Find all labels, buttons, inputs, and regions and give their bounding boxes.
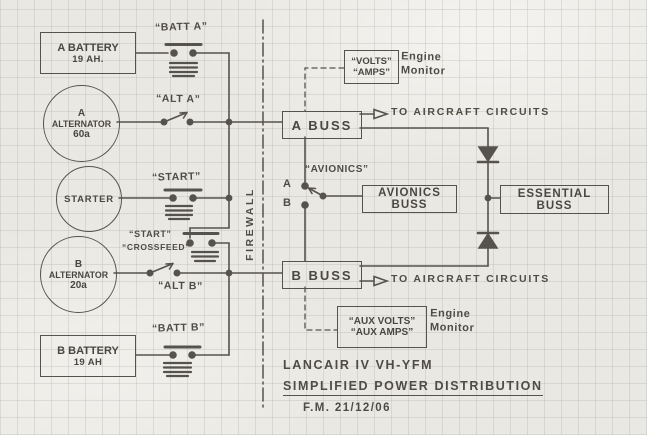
title-aircraft: LANCAIR IV VH-YFM <box>283 358 433 372</box>
battery-a-rating: 19 AH. <box>72 54 104 65</box>
avionics-switch-label: “AVIONICS” <box>305 164 369 175</box>
alternator-a-name: ALTERNATOR <box>52 119 111 129</box>
batt-a-contactor-icon <box>166 45 201 77</box>
batt-b-switch-label: “BATT B” <box>152 321 205 334</box>
alternator-b-rating: 20a <box>70 280 87 291</box>
aux-volts-amps-monitor-box: “AUX VOLTS” “AUX AMPS” <box>337 306 427 348</box>
to-aircraft-circuits-top-label: TO AIRCRAFT CIRCUITS <box>391 106 550 118</box>
alt-b-switch-icon <box>114 264 282 276</box>
starter-name: STARTER <box>64 194 114 205</box>
avionics-buss-box: AVIONICS BUSS <box>362 185 457 213</box>
battery-a-name: A BATTERY <box>57 42 118 54</box>
alt-a-switch-icon <box>117 113 282 125</box>
amps-label: “AMPS” <box>353 67 390 78</box>
crossfeed-label-line1: “START” <box>129 229 172 239</box>
engine-monitor-bottom-label: Engine Monitor <box>430 307 493 336</box>
volts-label: “VOLTS” <box>351 56 391 67</box>
start-switch-label: “START” <box>152 170 201 183</box>
avionics-position-b-label: B <box>283 197 292 209</box>
avionics-switch-icon <box>302 137 362 261</box>
alt-b-switch-label: “ALT B” <box>158 280 203 293</box>
essential-buss-label: ESSENTIAL BUSS <box>501 188 608 212</box>
a-buss-box: A BUSS <box>282 111 362 139</box>
crossfeed-label-line2: “CROSSFEED” <box>122 242 190 252</box>
schematic-page: A BATTERY 19 AH. A ALTERNATOR 60a STARTE… <box>0 0 647 435</box>
alternator-a-circle: A ALTERNATOR 60a <box>43 85 120 162</box>
b-buss-label: B BUSS <box>291 268 352 283</box>
start-contactor-icon <box>119 190 229 219</box>
batt-a-switch-label: “BATT A” <box>155 20 208 33</box>
alternator-b-circle: B ALTERNATOR 20a <box>40 236 117 313</box>
alternator-b-name: ALTERNATOR <box>49 270 108 280</box>
avionics-buss-label: AVIONICS BUSS <box>363 187 456 211</box>
aux-amps-label: “AUX AMPS” <box>351 327 413 338</box>
firewall-label: FIREWALL <box>244 174 256 274</box>
a-buss-label: A BUSS <box>292 118 353 133</box>
alternator-a-rating: 60a <box>73 129 90 140</box>
volts-amps-monitor-box: “VOLTS” “AMPS” <box>344 50 399 84</box>
title-initials-date: F.M. 21/12/06 <box>303 402 391 414</box>
arrow-right-icon <box>374 110 387 119</box>
battery-b-name: B BATTERY <box>57 345 119 357</box>
arrow-right-icon <box>374 277 387 286</box>
essential-buss-box: ESSENTIAL BUSS <box>500 185 609 214</box>
aux-volts-label: “AUX VOLTS” <box>349 316 415 327</box>
b-buss-box: B BUSS <box>282 261 362 289</box>
battery-b-box: B BATTERY 19 AH <box>40 335 136 377</box>
alternator-a-letter: A <box>78 108 85 119</box>
diode-bottom-icon <box>478 233 498 248</box>
battery-a-box: A BATTERY 19 AH. <box>40 32 136 74</box>
diode-top-icon <box>478 147 498 162</box>
alt-a-switch-label: “ALT A” <box>156 93 201 106</box>
alternator-b-letter: B <box>75 259 82 270</box>
to-aircraft-circuits-bottom-label: TO AIRCRAFT CIRCUITS <box>391 273 550 285</box>
engine-monitor-top-label: Engine Monitor <box>401 50 460 79</box>
starter-circle: STARTER <box>56 166 122 232</box>
batt-b-contactor-icon <box>164 347 200 376</box>
avionics-position-a-label: A <box>283 178 292 190</box>
title-drawing-name: SIMPLIFIED POWER DISTRIBUTION <box>283 379 543 396</box>
battery-b-rating: 19 AH <box>74 357 103 368</box>
